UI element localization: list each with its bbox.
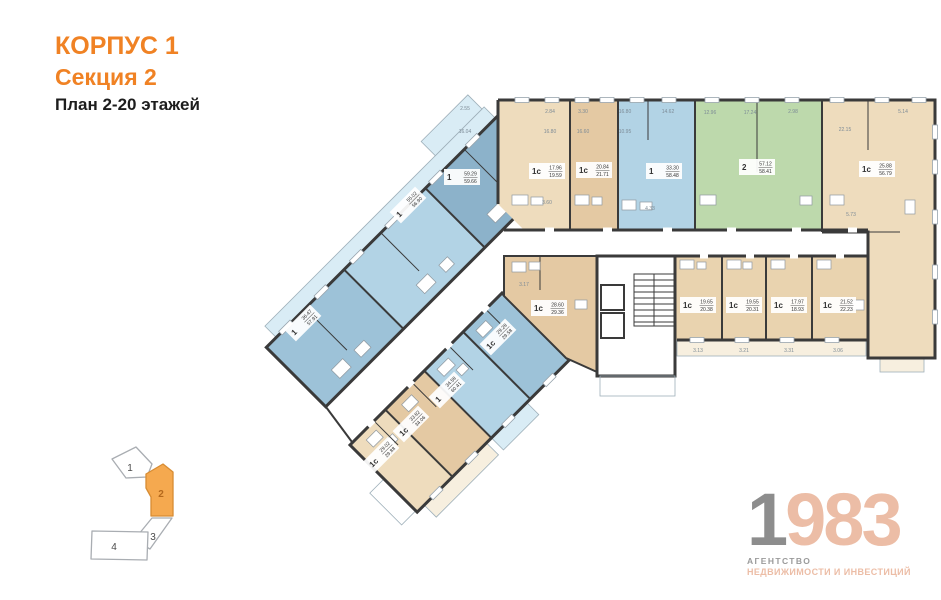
svg-text:1с: 1с: [729, 301, 738, 310]
svg-text:16.80: 16.80: [619, 109, 632, 115]
logo-digit-gray: 1: [747, 478, 785, 561]
svg-text:20.84: 20.84: [596, 165, 609, 171]
svg-text:21.71: 21.71: [596, 172, 609, 178]
apartment-area-label: 1с19.5520.31: [726, 297, 762, 313]
apartment-area-label: 133.3058.48: [646, 163, 682, 179]
svg-text:18.93: 18.93: [791, 307, 804, 313]
svg-text:3.30: 3.30: [578, 109, 588, 115]
svg-text:25.88: 25.88: [879, 164, 892, 170]
svg-text:1с: 1с: [579, 166, 588, 175]
svg-text:3.21: 3.21: [739, 348, 749, 354]
svg-text:1с: 1с: [823, 301, 832, 310]
svg-text:3.60: 3.60: [542, 200, 552, 206]
apartment-area-label: 1с17.9718.93: [771, 297, 807, 313]
minimap-label-3: 3: [150, 532, 156, 543]
stair-core: [597, 256, 675, 396]
svg-text:1: 1: [649, 167, 654, 176]
svg-text:16.04: 16.04: [459, 129, 472, 135]
svg-text:17.24: 17.24: [744, 110, 757, 116]
svg-text:1с: 1с: [683, 301, 692, 310]
svg-text:19.65: 19.65: [700, 300, 713, 306]
minimap-section-4[interactable]: [91, 531, 148, 560]
svg-text:1с: 1с: [862, 165, 871, 174]
apartment-area-label: 1с19.6520.38: [680, 297, 716, 313]
svg-text:3.17: 3.17: [519, 282, 529, 288]
logo-digits: 1983: [747, 486, 937, 554]
staircase: [634, 274, 674, 326]
svg-text:19.59: 19.59: [549, 173, 562, 179]
svg-text:1с: 1с: [532, 167, 541, 176]
logo-caption-line2: НЕДВИЖИМОСТИ И ИНВЕСТИЦИЙ: [747, 567, 937, 577]
svg-text:17.97: 17.97: [791, 300, 804, 306]
svg-text:29.36: 29.36: [551, 310, 564, 316]
section-minimap: 1 2 3 4: [91, 447, 173, 560]
svg-text:2.55: 2.55: [460, 106, 470, 112]
svg-text:28.60: 28.60: [551, 303, 564, 309]
svg-text:12.96: 12.96: [704, 110, 717, 116]
svg-text:56.79: 56.79: [879, 171, 892, 177]
svg-text:19.55: 19.55: [746, 300, 759, 306]
svg-text:22.15: 22.15: [839, 127, 852, 133]
elevator: [601, 285, 624, 310]
svg-text:3.06: 3.06: [833, 348, 843, 354]
svg-text:2.84: 2.84: [545, 109, 555, 115]
svg-text:21.52: 21.52: [840, 300, 853, 306]
apartment-area-label: 1с25.8856.79: [859, 161, 895, 177]
svg-text:20.31: 20.31: [746, 307, 759, 313]
svg-text:57.12: 57.12: [759, 162, 772, 168]
svg-text:58.48: 58.48: [666, 173, 679, 179]
svg-text:5.14: 5.14: [898, 109, 908, 115]
apartment-area-label: 1с21.5222.23: [820, 297, 856, 313]
logo-digits-salmon: 983: [785, 478, 899, 561]
svg-text:4.33: 4.33: [645, 206, 655, 212]
svg-text:17.96: 17.96: [549, 166, 562, 172]
page: КОРПУС 1 Секция 2 План 2-20 этажей: [0, 0, 941, 600]
svg-text:1с: 1с: [534, 304, 543, 313]
elevator: [601, 313, 624, 338]
svg-text:20.38: 20.38: [700, 307, 713, 313]
svg-text:3.13: 3.13: [693, 348, 703, 354]
svg-text:59.29: 59.29: [464, 172, 477, 178]
svg-text:58.41: 58.41: [759, 169, 772, 175]
logo-1983: 1983 АГЕНТСТВО НЕДВИЖИМОСТИ И ИНВЕСТИЦИЙ: [747, 486, 937, 577]
svg-text:16.80: 16.80: [544, 129, 557, 135]
svg-text:14.62: 14.62: [662, 109, 675, 115]
minimap-label-1: 1: [127, 463, 133, 474]
svg-text:2: 2: [742, 163, 747, 172]
minimap-label-2: 2: [158, 489, 164, 500]
svg-text:5.73: 5.73: [846, 212, 856, 218]
svg-text:1: 1: [447, 173, 452, 182]
svg-text:59.66: 59.66: [464, 179, 477, 185]
balcony: [880, 358, 924, 372]
apartment-area-label: 1с20.8421.71: [576, 162, 612, 178]
svg-text:10.95: 10.95: [619, 129, 632, 135]
svg-text:2.98: 2.98: [788, 109, 798, 115]
apartment-area-label: 257.1258.41: [739, 159, 775, 175]
apartment-area-label: 159.2959.66: [444, 169, 480, 185]
minimap-label-4: 4: [111, 542, 117, 553]
apartment-area-label: 1с28.6029.36: [531, 300, 567, 316]
svg-text:1с: 1с: [774, 301, 783, 310]
svg-text:3.31: 3.31: [784, 348, 794, 354]
apartment-area-label: 1с17.9619.59: [529, 163, 565, 179]
svg-text:22.23: 22.23: [840, 307, 853, 313]
svg-text:16.60: 16.60: [577, 129, 590, 135]
svg-text:33.30: 33.30: [666, 166, 679, 172]
